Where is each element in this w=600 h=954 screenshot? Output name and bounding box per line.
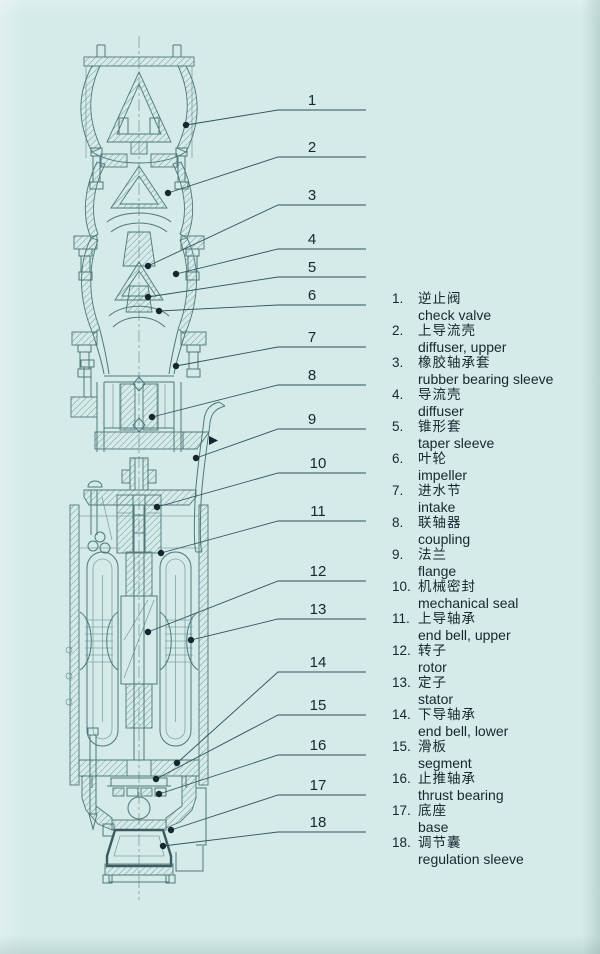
thrust-bearing xyxy=(141,788,152,796)
legend-item-number: 17. xyxy=(389,803,418,835)
leader-lines xyxy=(145,110,366,849)
legend-item: 7.进水节intake xyxy=(389,483,589,515)
legend-item-en: flange xyxy=(418,563,589,579)
legend-item-zh: 橡胶轴承套 xyxy=(418,355,589,371)
callout-11: 11 xyxy=(310,503,326,520)
legend-item: 11.上导轴承end bell, upper xyxy=(389,611,589,643)
callout-6: 6 xyxy=(308,287,316,304)
legend-item-zh: 导流壳 xyxy=(418,387,589,403)
legend-item-number: 4. xyxy=(389,387,418,419)
legend-item-zh: 滑板 xyxy=(418,739,589,755)
callout-numbers: 1 2 3 4 5 6 7 8 9 10 11 12 13 14 15 16 1… xyxy=(308,92,327,831)
legend-item-zh: 机械密封 xyxy=(418,579,589,595)
callout-14: 14 xyxy=(310,654,327,671)
legend-item-number: 13. xyxy=(389,675,418,707)
base xyxy=(82,776,112,830)
legend-item-zh: 逆止阀 xyxy=(418,291,589,307)
legend-item-number: 5. xyxy=(389,419,418,451)
lower-end-bell xyxy=(79,760,127,776)
flange xyxy=(95,432,183,449)
callout-18: 18 xyxy=(310,814,327,831)
legend-item: 4.导流壳diffuser xyxy=(389,387,589,419)
callout-4: 4 xyxy=(308,231,316,248)
legend-item-en: regulation sleeve xyxy=(418,851,589,867)
legend-item-number: 2. xyxy=(389,323,418,355)
legend-item-number: 15. xyxy=(389,739,418,771)
callout-15: 15 xyxy=(310,697,327,714)
legend-item-zh: 上导轴承 xyxy=(418,611,589,627)
legend-item: 17.底座base xyxy=(389,803,589,835)
legend-item: 13.定子stator xyxy=(389,675,589,707)
coupling xyxy=(120,384,135,430)
callout-16: 16 xyxy=(310,737,327,754)
legend-item-en: intake xyxy=(418,499,589,515)
legend-item-en: check valve xyxy=(418,307,589,323)
legend-item: 6.叶轮impeller xyxy=(389,451,589,483)
legend-item-number: 16. xyxy=(389,771,418,803)
legend-item-number: 6. xyxy=(389,451,418,483)
legend-item: 1.逆止阀check valve xyxy=(389,291,589,323)
legend-item-number: 11. xyxy=(389,611,418,643)
legend-item-zh: 上导流壳 xyxy=(418,323,589,339)
seal-section xyxy=(84,458,196,553)
legend-item: 18.调节囊regulation sleeve xyxy=(389,835,589,867)
legend-item-en: end bell, lower xyxy=(418,723,589,739)
legend-item-number: 9. xyxy=(389,547,418,579)
legend-item: 8.联轴器coupling xyxy=(389,515,589,547)
legend-item-number: 3. xyxy=(389,355,418,387)
legend-item-en: diffuser xyxy=(418,403,589,419)
legend-item-en: thrust bearing xyxy=(418,787,589,803)
callout-5: 5 xyxy=(308,259,316,276)
legend-item-zh: 叶轮 xyxy=(418,451,589,467)
rubber-bearing-sleeve xyxy=(123,232,155,266)
legend-item-en: coupling xyxy=(418,531,589,547)
legend-item-en: mechanical seal xyxy=(418,595,589,611)
legend-item-number: 8. xyxy=(389,515,418,547)
legend-item-zh: 底座 xyxy=(418,803,589,819)
callout-12: 12 xyxy=(310,563,327,580)
legend-item-zh: 定子 xyxy=(418,675,589,691)
legend-item: 3.橡胶轴承套rubber bearing sleeve xyxy=(389,355,589,387)
legend-item: 2.上导流壳diffuser, upper xyxy=(389,323,589,355)
legend-item: 14.下导轴承end bell, lower xyxy=(389,707,589,739)
callout-2: 2 xyxy=(308,139,316,156)
legend-item-en: rubber bearing sleeve xyxy=(418,371,589,387)
legend-item-en: diffuser, upper xyxy=(418,339,589,355)
legend-item-en: end bell, upper xyxy=(418,627,589,643)
mechanical-seal xyxy=(117,495,133,553)
legend-item: 16.止推轴承thrust bearing xyxy=(389,771,589,803)
legend-item-number: 18. xyxy=(389,835,418,867)
legend-item: 15.滑板segment xyxy=(389,739,589,771)
legend-item-number: 1. xyxy=(389,291,418,323)
callout-7: 7 xyxy=(308,329,316,346)
legend-item: 9.法兰flange xyxy=(389,547,589,579)
scanned-page: 1 2 3 4 5 6 7 8 9 10 11 12 13 14 15 16 1… xyxy=(0,0,600,954)
legend-item-number: 12. xyxy=(389,643,418,675)
legend-item-en: impeller xyxy=(418,467,589,483)
callout-8: 8 xyxy=(308,367,316,384)
parts-legend: 1.逆止阀check valve 2.上导流壳diffuser, upper 3… xyxy=(389,291,589,867)
callout-1: 1 xyxy=(308,92,316,109)
legend-item-zh: 联轴器 xyxy=(418,515,589,531)
legend-item: 5.锥形套taper sleeve xyxy=(389,419,589,451)
legend-item-number: 7. xyxy=(389,483,418,515)
legend-item: 10.机械密封mechanical seal xyxy=(389,579,589,611)
legend-item-zh: 下导轴承 xyxy=(418,707,589,723)
callout-17: 17 xyxy=(310,777,327,794)
bottom-section xyxy=(79,728,206,883)
legend-item-en: stator xyxy=(418,691,589,707)
legend-item-zh: 进水节 xyxy=(418,483,589,499)
legend-item-number: 14. xyxy=(389,707,418,739)
legend-item-zh: 法兰 xyxy=(418,547,589,563)
callout-3: 3 xyxy=(308,187,316,204)
callout-10: 10 xyxy=(310,455,327,472)
legend-item-en: base xyxy=(418,819,589,835)
legend-item-zh: 调节囊 xyxy=(418,835,589,851)
legend-item: 12.转子rotor xyxy=(389,643,589,675)
motor-section xyxy=(66,505,208,785)
legend-item-zh: 止推轴承 xyxy=(418,771,589,787)
upper-end-bell-bearing xyxy=(126,552,152,596)
callout-13: 13 xyxy=(310,601,327,618)
legend-item-zh: 锥形套 xyxy=(418,419,589,435)
legend-item-zh: 转子 xyxy=(418,643,589,659)
legend-item-en: taper sleeve xyxy=(418,435,589,451)
legend-item-number: 10. xyxy=(389,579,418,611)
callout-9: 9 xyxy=(308,411,316,428)
legend-item-en: rotor xyxy=(418,659,589,675)
legend-item-en: segment xyxy=(418,755,589,771)
